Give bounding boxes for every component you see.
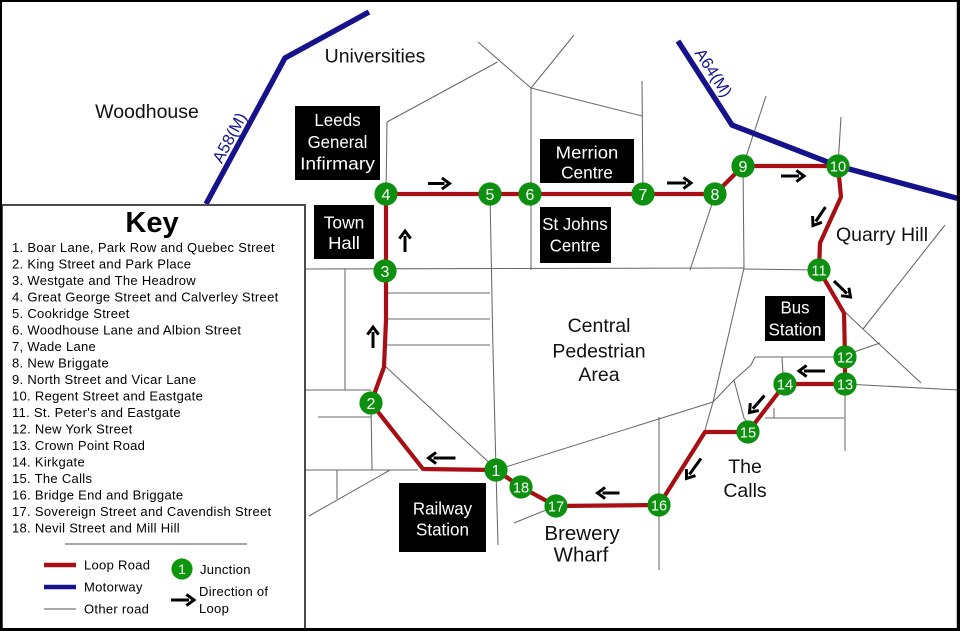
svg-text:Station: Station bbox=[416, 520, 469, 540]
svg-text:Direction of: Direction of bbox=[199, 584, 268, 599]
svg-text:3. Westgate and The Headrow: 3. Westgate and The Headrow bbox=[12, 273, 196, 288]
svg-text:Pedestrian: Pedestrian bbox=[552, 341, 645, 363]
svg-text:11: 11 bbox=[811, 264, 826, 280]
svg-text:6: 6 bbox=[526, 187, 535, 204]
svg-text:Other road: Other road bbox=[84, 602, 149, 617]
svg-text:9. North Street and Vicar Lane: 9. North Street and Vicar Lane bbox=[12, 372, 196, 387]
svg-text:8: 8 bbox=[711, 187, 720, 204]
svg-text:2. King Street and Park Place: 2. King Street and Park Place bbox=[12, 257, 191, 272]
svg-text:13: 13 bbox=[837, 378, 853, 394]
svg-text:10: 10 bbox=[830, 160, 846, 176]
svg-text:Leeds: Leeds bbox=[314, 110, 360, 130]
svg-text:Railway: Railway bbox=[413, 499, 473, 519]
svg-text:18. Nevil Street and Mill Hill: 18. Nevil Street and Mill Hill bbox=[12, 521, 180, 536]
svg-text:7: 7 bbox=[639, 187, 648, 204]
svg-text:15: 15 bbox=[740, 426, 756, 442]
svg-text:16. Bridge End and Briggate: 16. Bridge End and Briggate bbox=[12, 488, 183, 503]
svg-text:17. Sovereign Street and Caven: 17. Sovereign Street and Cavendish Stree… bbox=[12, 504, 272, 519]
svg-text:11. St. Peter's and Eastgate: 11. St. Peter's and Eastgate bbox=[12, 405, 181, 420]
svg-text:2: 2 bbox=[367, 396, 376, 413]
svg-text:Quarry Hill: Quarry Hill bbox=[836, 224, 928, 246]
svg-text:Centre: Centre bbox=[561, 163, 613, 183]
svg-text:Infirmary: Infirmary bbox=[300, 154, 375, 174]
svg-text:1: 1 bbox=[492, 463, 501, 480]
svg-text:4: 4 bbox=[382, 187, 391, 204]
svg-text:Hall: Hall bbox=[328, 233, 360, 253]
svg-text:The: The bbox=[728, 456, 762, 478]
svg-text:Centre: Centre bbox=[550, 236, 601, 256]
svg-text:7, Wade Lane: 7, Wade Lane bbox=[12, 339, 96, 354]
svg-text:Key: Key bbox=[125, 207, 178, 239]
svg-text:General: General bbox=[308, 132, 368, 152]
svg-text:Station: Station bbox=[769, 320, 822, 340]
svg-text:Merrion: Merrion bbox=[556, 143, 619, 163]
svg-text:1: 1 bbox=[178, 561, 186, 577]
svg-text:Calls: Calls bbox=[723, 480, 767, 502]
svg-text:Loop Road: Loop Road bbox=[84, 558, 150, 573]
svg-text:Central: Central bbox=[568, 315, 631, 337]
svg-text:Area: Area bbox=[578, 364, 619, 386]
svg-text:16: 16 bbox=[651, 499, 667, 515]
svg-text:Junction: Junction bbox=[200, 562, 251, 577]
svg-text:4. Great George Street and Cal: 4. Great George Street and Calverley Str… bbox=[12, 290, 279, 305]
svg-text:6. Woodhouse Lane and Albion S: 6. Woodhouse Lane and Albion Street bbox=[12, 323, 241, 338]
svg-text:Universities: Universities bbox=[325, 46, 426, 68]
svg-text:1. Boar Lane, Park Row and Que: 1. Boar Lane, Park Row and Quebec Street bbox=[12, 240, 275, 255]
svg-text:12: 12 bbox=[837, 351, 853, 367]
svg-text:14. Kirkgate: 14. Kirkgate bbox=[12, 455, 85, 470]
svg-text:8. New Briggate: 8. New Briggate bbox=[12, 356, 109, 371]
svg-text:Motorway: Motorway bbox=[84, 580, 143, 595]
svg-text:17: 17 bbox=[548, 500, 564, 516]
svg-text:Town: Town bbox=[324, 213, 365, 233]
svg-text:10. Regent Street and Eastgate: 10. Regent Street and Eastgate bbox=[12, 389, 203, 404]
svg-text:Loop: Loop bbox=[199, 601, 229, 616]
svg-text:Woodhouse: Woodhouse bbox=[95, 101, 199, 123]
svg-text:Brewery: Brewery bbox=[544, 522, 620, 545]
svg-text:5. Cookridge Street: 5. Cookridge Street bbox=[12, 306, 130, 321]
svg-text:15. The Calls: 15. The Calls bbox=[12, 471, 92, 486]
svg-text:18: 18 bbox=[513, 481, 529, 497]
svg-text:9: 9 bbox=[739, 159, 748, 176]
svg-text:13. Crown Point Road: 13. Crown Point Road bbox=[12, 438, 145, 453]
svg-text:St Johns: St Johns bbox=[542, 214, 607, 234]
svg-text:3: 3 bbox=[381, 264, 390, 281]
svg-text:Bus: Bus bbox=[781, 298, 810, 318]
svg-text:12. New York Street: 12. New York Street bbox=[12, 422, 133, 437]
svg-text:14: 14 bbox=[777, 378, 793, 394]
svg-text:Wharf: Wharf bbox=[554, 544, 609, 567]
svg-text:5: 5 bbox=[486, 187, 495, 204]
